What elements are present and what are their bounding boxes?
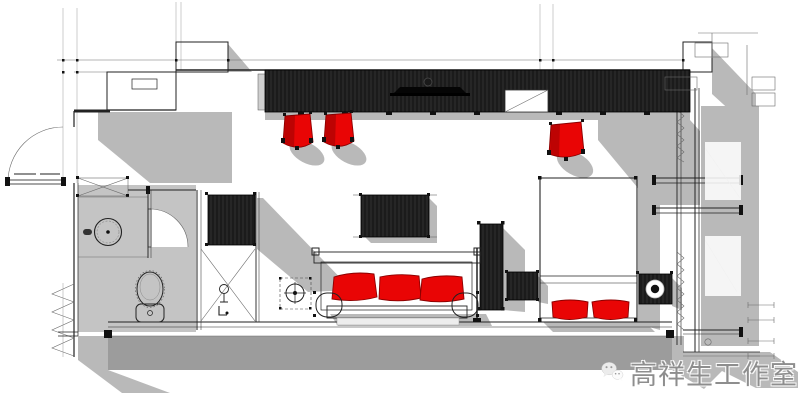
pillow (552, 300, 588, 320)
nightstand-left (505, 270, 539, 301)
wall-niche-top (176, 42, 228, 72)
wardrobe (205, 192, 256, 246)
bed (538, 176, 638, 322)
entry-closet (107, 72, 176, 110)
floor-plan-page: 高祥生工作室 (0, 0, 798, 411)
sofa (312, 248, 481, 325)
sofa-cushion (420, 276, 464, 302)
sofa-cushion (379, 275, 421, 301)
tv-panel (353, 193, 437, 238)
entry-door (5, 127, 66, 186)
speaker-nightstand (636, 271, 673, 304)
pillow (592, 300, 629, 320)
lounge-chair (322, 110, 354, 149)
floor-plan-drawing (0, 0, 798, 411)
lounge-chair (281, 111, 313, 150)
tv-wall-cabinet (258, 70, 690, 115)
